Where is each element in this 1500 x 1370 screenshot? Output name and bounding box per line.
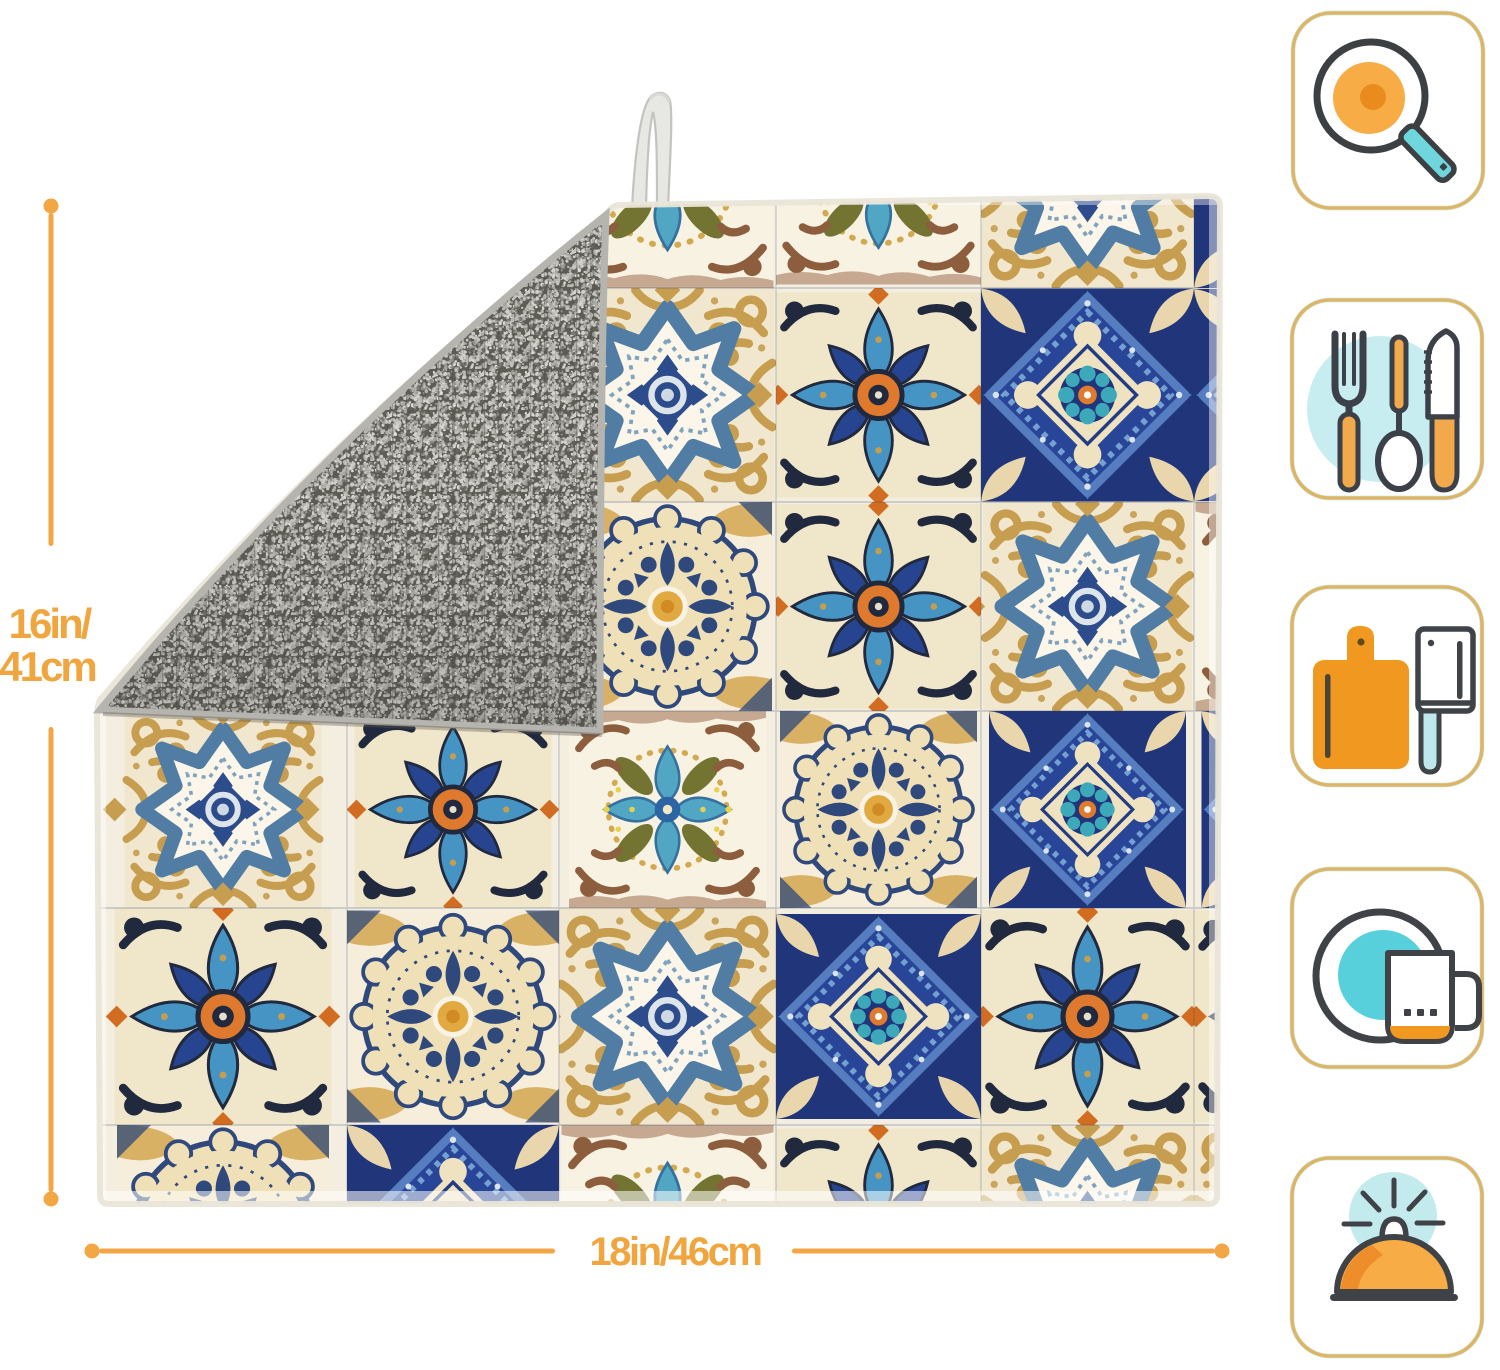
svg-text:16in/: 16in/	[9, 600, 93, 647]
svg-text:18in/46cm: 18in/46cm	[590, 1230, 762, 1274]
svg-text:41cm: 41cm	[0, 643, 95, 690]
